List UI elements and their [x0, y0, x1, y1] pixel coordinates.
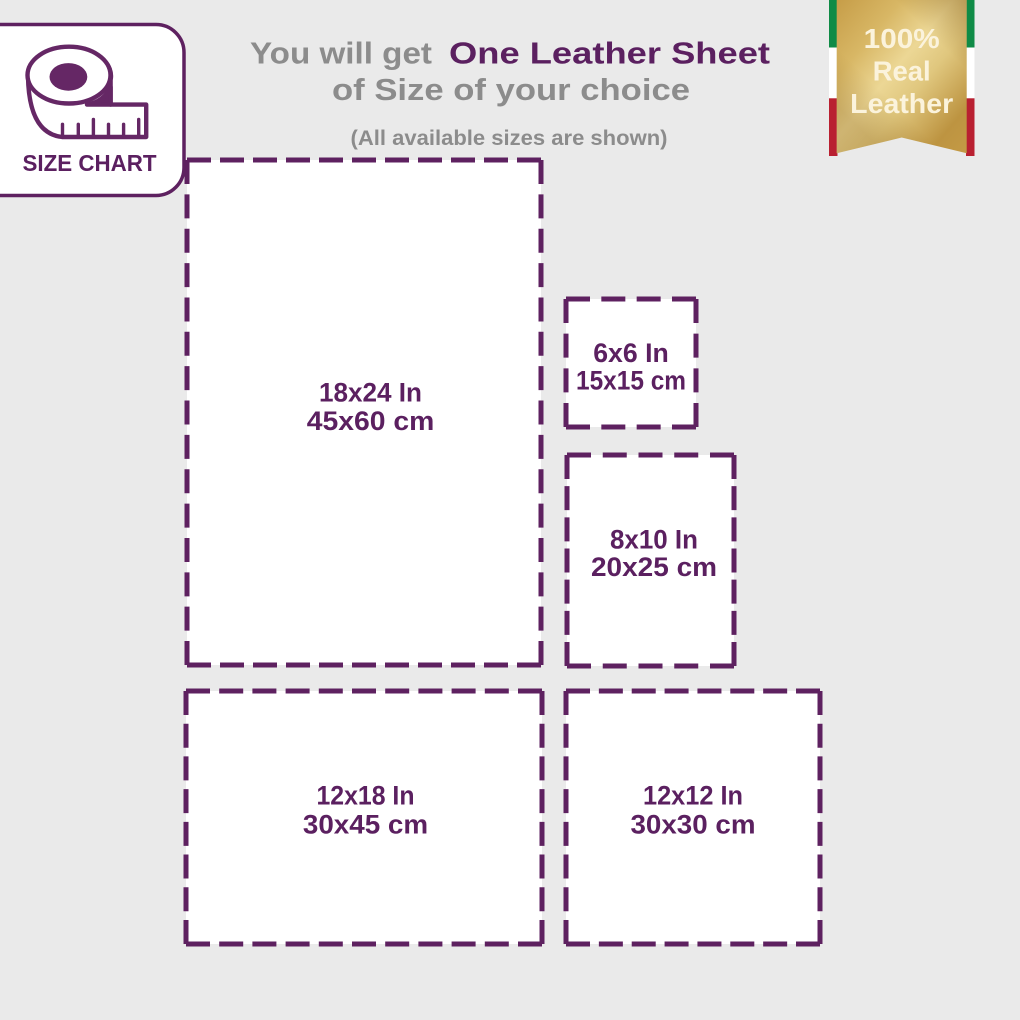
svg-text:100%: 100% [864, 23, 940, 54]
svg-text:30x45 cm: 30x45 cm [303, 810, 428, 840]
svg-text:30x30 cm: 30x30 cm [631, 810, 756, 840]
svg-text:18x24 In: 18x24 In [319, 378, 422, 408]
svg-text:12x12 In: 12x12 In [643, 781, 743, 811]
svg-text:(All available sizes are shown: (All available sizes are shown) [351, 126, 668, 150]
svg-text:Real: Real [873, 56, 931, 87]
svg-text:12x18 In: 12x18 In [317, 781, 415, 811]
svg-text:of Size of your choice: of Size of your choice [332, 72, 690, 107]
svg-text:8x10 In: 8x10 In [610, 524, 698, 554]
svg-text:6x6 In: 6x6 In [593, 338, 669, 368]
svg-text:SIZE CHART: SIZE CHART [23, 150, 157, 176]
svg-text:You will get: You will get [250, 35, 432, 70]
svg-text:45x60 cm: 45x60 cm [307, 406, 435, 436]
svg-text:15x15 cm: 15x15 cm [576, 366, 686, 396]
svg-text:One Leather Sheet: One Leather Sheet [449, 35, 770, 70]
svg-text:20x25 cm: 20x25 cm [591, 552, 717, 582]
svg-text:Leather: Leather [850, 88, 953, 119]
